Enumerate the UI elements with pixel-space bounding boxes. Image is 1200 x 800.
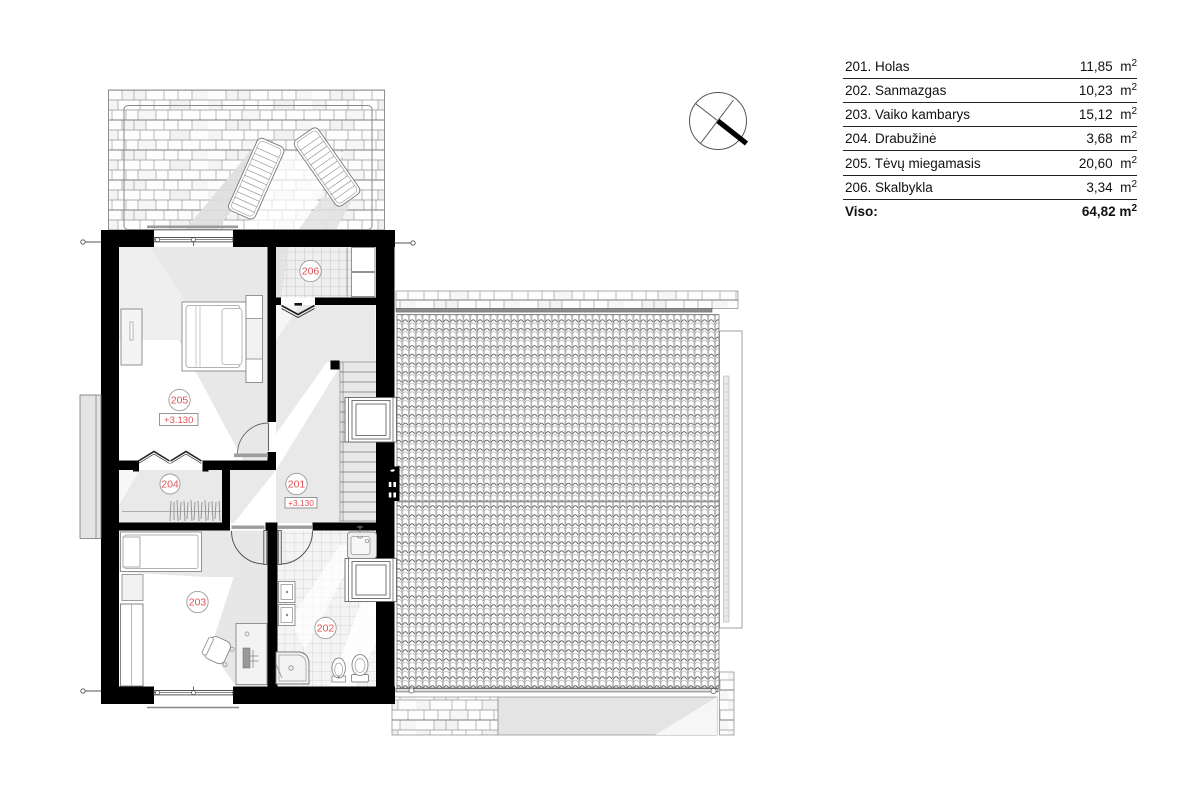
svg-text:201: 201: [288, 479, 306, 491]
svg-text:204: 204: [161, 479, 179, 491]
svg-text:202: 202: [317, 623, 335, 635]
svg-text:+3.130: +3.130: [288, 498, 314, 508]
svg-text:206: 206: [302, 266, 320, 278]
svg-text:+3.130: +3.130: [164, 415, 193, 426]
svg-text:205: 205: [171, 395, 189, 407]
svg-text:203: 203: [189, 597, 207, 609]
